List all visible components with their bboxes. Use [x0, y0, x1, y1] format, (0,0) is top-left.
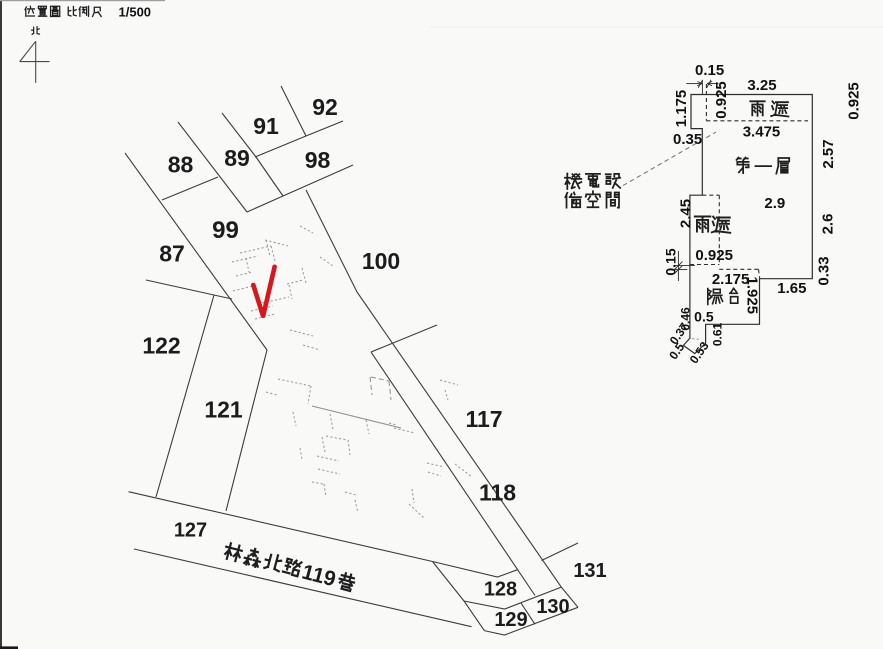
- svg-text:0.925: 0.925: [695, 247, 733, 264]
- svg-text:0.925: 0.925: [846, 82, 863, 120]
- svg-text:92: 92: [312, 94, 338, 120]
- svg-text:117: 117: [465, 406, 502, 432]
- svg-text:89: 89: [224, 145, 250, 171]
- svg-text:0.33: 0.33: [816, 256, 833, 285]
- svg-text:88: 88: [168, 152, 194, 178]
- svg-text:2.57: 2.57: [820, 139, 837, 168]
- svg-text:121: 121: [204, 397, 243, 423]
- svg-text:91: 91: [253, 113, 279, 139]
- svg-text:1.925: 1.925: [743, 277, 760, 315]
- svg-text:122: 122: [142, 333, 180, 359]
- svg-text:0.925: 0.925: [713, 81, 730, 119]
- svg-text:87: 87: [159, 241, 185, 267]
- svg-text:99: 99: [212, 217, 239, 244]
- svg-text:127: 127: [174, 520, 207, 542]
- svg-text:130: 130: [536, 596, 569, 618]
- svg-text:1.65: 1.65: [777, 280, 806, 297]
- svg-text:0.5: 0.5: [694, 309, 714, 325]
- svg-text:2.45: 2.45: [678, 199, 695, 228]
- svg-text:129: 129: [494, 609, 527, 631]
- svg-text:100: 100: [362, 248, 400, 274]
- svg-text:0.15: 0.15: [663, 248, 679, 275]
- svg-text:2.9: 2.9: [764, 195, 785, 212]
- svg-text:0.61: 0.61: [711, 322, 725, 346]
- svg-text:1.175: 1.175: [673, 90, 690, 128]
- svg-text:1/500: 1/500: [119, 4, 152, 19]
- svg-text:0.15: 0.15: [695, 62, 724, 79]
- svg-text:131: 131: [573, 560, 606, 582]
- svg-text:118: 118: [479, 480, 516, 506]
- svg-text:0.35: 0.35: [673, 131, 702, 148]
- svg-text:3.475: 3.475: [743, 124, 781, 141]
- svg-text:98: 98: [305, 147, 331, 173]
- svg-text:128: 128: [484, 579, 517, 601]
- svg-text:2.6: 2.6: [820, 214, 837, 235]
- svg-text:3.25: 3.25: [747, 77, 776, 94]
